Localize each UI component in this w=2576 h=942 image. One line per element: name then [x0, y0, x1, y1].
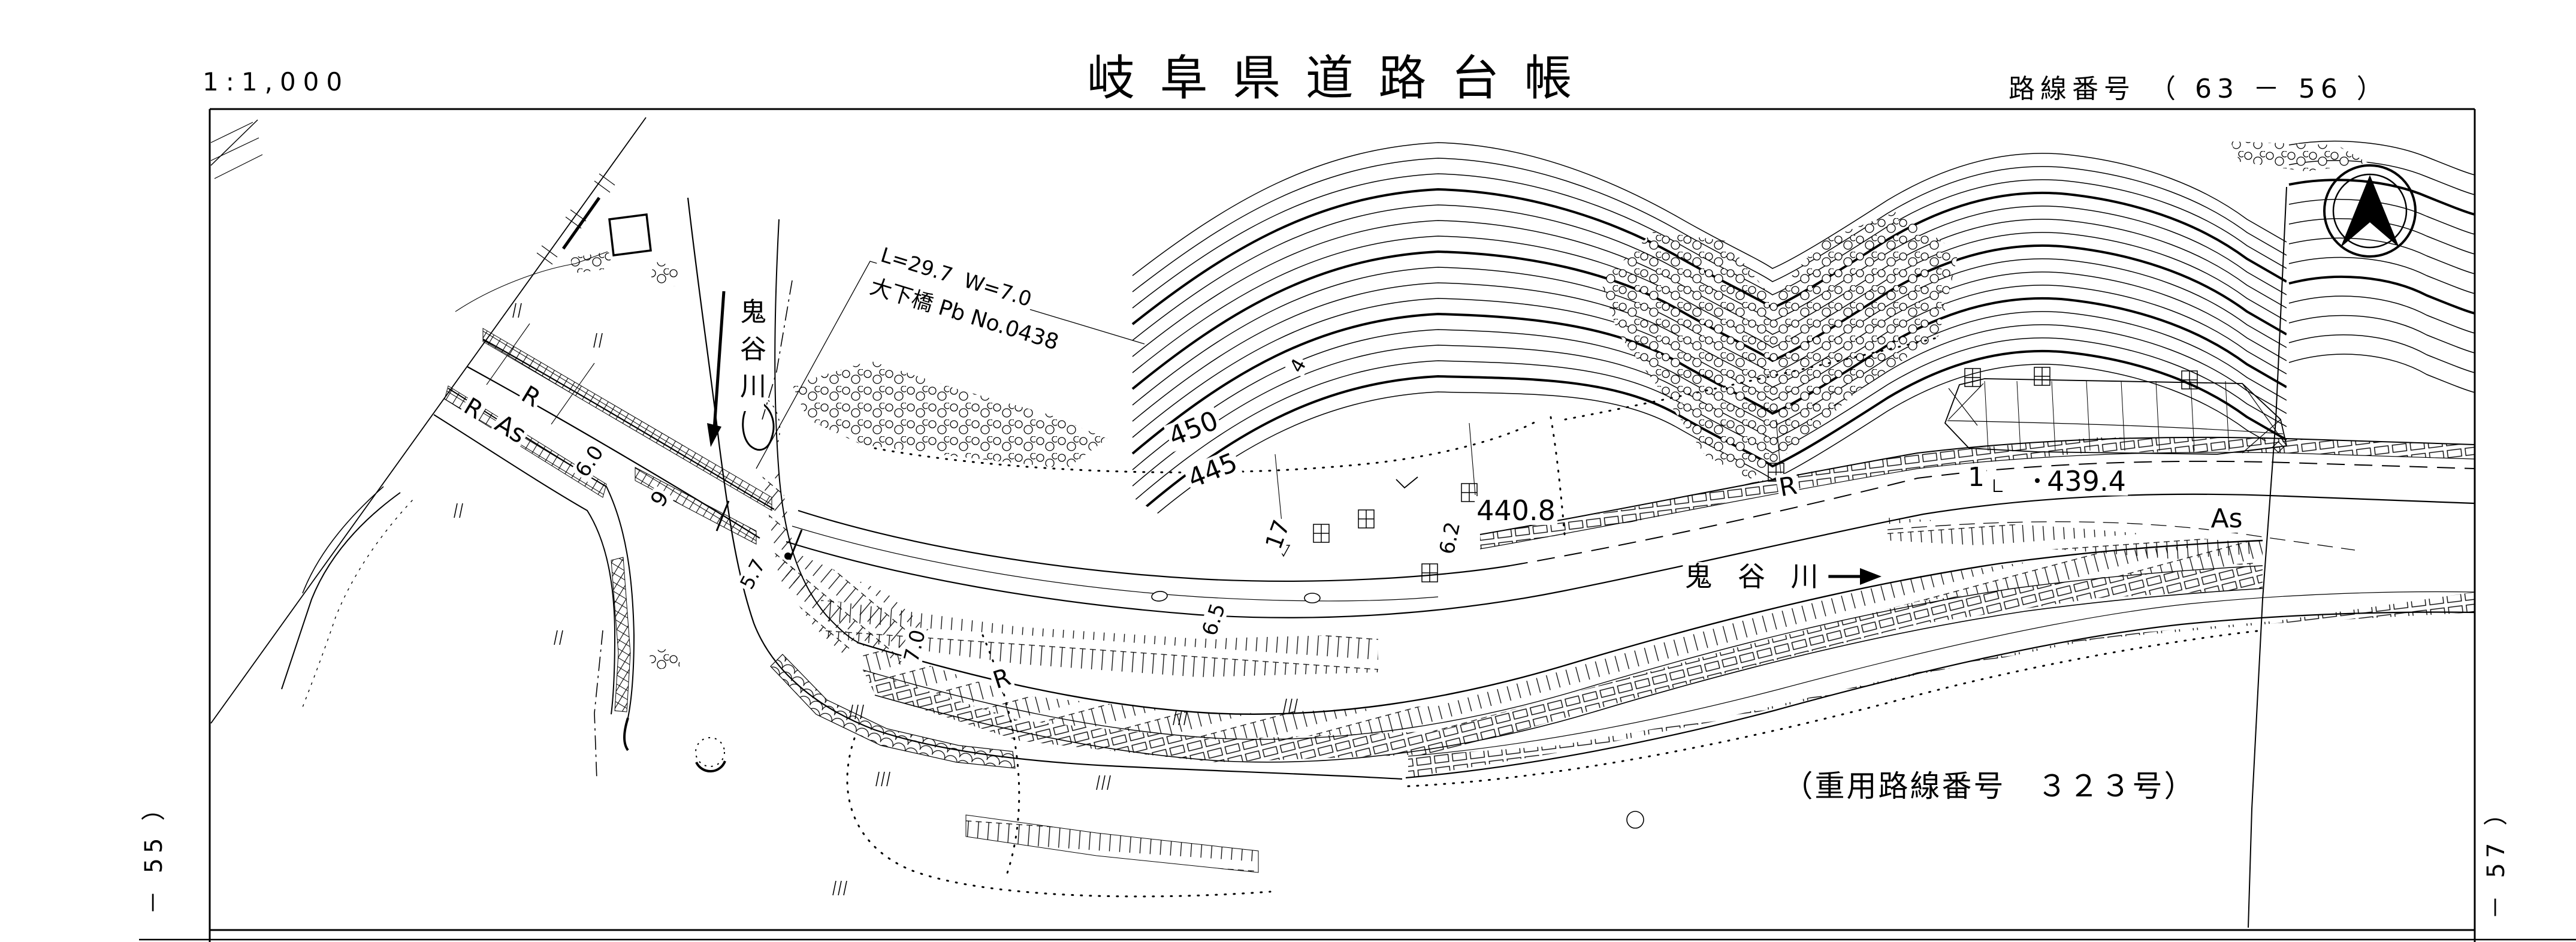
- surface-label-r-4: R: [988, 664, 1015, 694]
- width-label-6-0: 6.0: [570, 440, 608, 482]
- overlap-route-note: （重用路線番号 ３２３号）: [1781, 771, 2198, 802]
- surface-label-r-3: R: [1775, 472, 1801, 501]
- lot-label-17: 17: [1261, 515, 1294, 554]
- surface-label-as-2: As: [2209, 505, 2244, 533]
- spot-height-440-8: 440.8: [1475, 496, 1557, 525]
- surface-label-as-1: As: [489, 409, 531, 449]
- contour-label-450: 450: [1164, 406, 1224, 452]
- map-annotations: 鬼谷川鬼 谷 川L=29.7 W=7.0大下橋 Pb No.0438450445…: [0, 0, 2576, 942]
- river-name-flow: 鬼 谷 川: [1683, 562, 1828, 591]
- lot-label-4: 4: [1285, 354, 1311, 378]
- spot-height-439-4: 439.4: [2045, 467, 2128, 496]
- width-label-6-2: 6.2: [1436, 518, 1464, 558]
- contour-label-445: 445: [1183, 448, 1243, 494]
- width-label-7-0: 7.0: [900, 626, 929, 666]
- width-label-9: 9: [646, 485, 675, 512]
- river-name-vertical: 鬼谷川: [736, 296, 764, 411]
- surface-label-r-2: R: [516, 381, 546, 412]
- surface-label-r-1: R: [458, 393, 489, 424]
- width-label-5-7: 5.7: [736, 554, 770, 594]
- road-ledger-sheet: 1:1,000 岐阜県道路台帳 路線番号 （ 63 － 56 ） － 55 ） …: [0, 0, 2576, 942]
- station-label-1: 1: [1966, 464, 1986, 491]
- width-label-6-5: 6.5: [1198, 599, 1230, 640]
